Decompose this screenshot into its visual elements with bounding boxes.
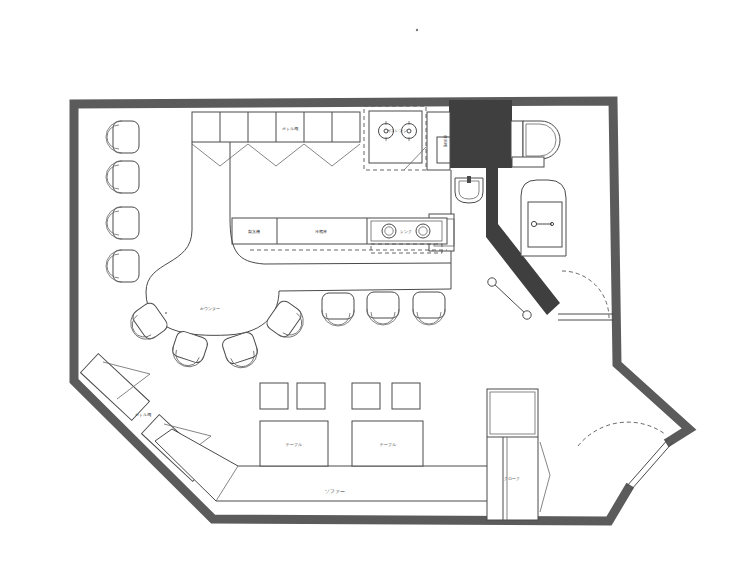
table-1: テーブル <box>260 421 328 466</box>
counter-stool <box>413 292 445 325</box>
toilet <box>511 121 560 167</box>
entrance-door-swing-arc <box>578 422 665 446</box>
wall-chair <box>106 207 139 239</box>
wall-chair <box>106 161 139 193</box>
counter-stool <box>221 331 262 372</box>
shelf-zigzag <box>192 144 360 166</box>
counter-stool <box>264 298 309 343</box>
table-chairs <box>260 383 420 409</box>
refrigerator-label: 冷蔵庫 <box>315 229 327 234</box>
scan-speck <box>416 29 418 31</box>
entrance-door <box>578 422 673 490</box>
vanity-sink <box>521 180 566 256</box>
interior-door-swing-arc <box>562 271 609 318</box>
bottle-shelf-side-label: ボトル棚 <box>135 412 151 417</box>
interior-door <box>558 271 614 320</box>
wall-chair <box>106 121 139 153</box>
hand-basin <box>455 176 483 203</box>
gas-range-label: ガスレンジ <box>387 128 407 133</box>
counter-stool <box>124 300 169 345</box>
counter-stool <box>367 292 399 325</box>
back-counter-island: 製氷機 冷蔵庫 シンク <box>232 218 447 253</box>
sofa-bench: ソファー <box>155 429 523 501</box>
bottle-shelf-top-label: ボトル棚 <box>282 126 298 131</box>
sofa-label: ソファー <box>325 488 345 494</box>
counter-stool <box>322 293 354 326</box>
counter-label: カウンター <box>200 306 220 311</box>
scan-speck <box>165 312 167 314</box>
ice-machine-label: 製氷機 <box>248 229 260 234</box>
wall-cabinet-row: ボトル棚 <box>192 112 360 166</box>
sink-label: シンク <box>400 229 412 234</box>
floor-plan-drawing: ボトル棚 ガスレンジ 食器棚 製氷機 <box>0 0 729 577</box>
wall-chair <box>106 250 139 282</box>
fold-door-mark <box>540 442 550 512</box>
floor-plan-page: ボトル棚 ガスレンジ 食器棚 製氷機 <box>0 0 729 577</box>
table-2: テーブル <box>352 421 423 466</box>
cloak-label: クローク <box>504 476 520 481</box>
counter-stool <box>169 330 210 371</box>
table-1-label: テーブル <box>286 442 302 447</box>
table-2-label: テーブル <box>380 442 396 447</box>
cloak-closet: クローク <box>487 389 550 520</box>
tall-cupboard: 食器棚 <box>427 112 450 170</box>
tall-cupboard-label: 食器棚 <box>443 134 448 147</box>
gas-range: ガスレンジ <box>364 106 426 170</box>
